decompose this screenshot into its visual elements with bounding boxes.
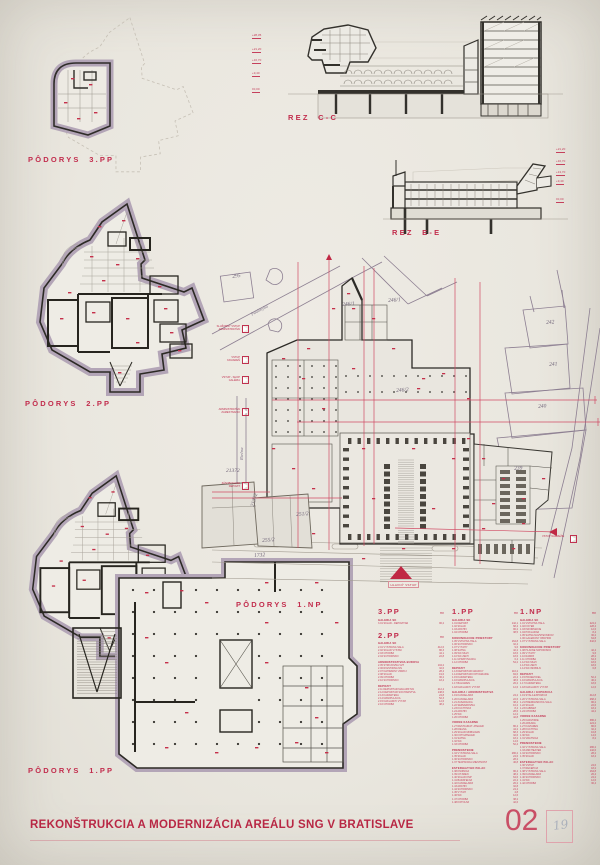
plan-3pp-drawing xyxy=(22,12,237,177)
drawing-sheet: PÔDORYS 3.PP REZ C-C REZ E-E PÔDORYS 2.P… xyxy=(0,0,600,865)
legend-row: 2.16 CHODBA48,2 xyxy=(378,703,444,706)
elevation-label: +16,70 xyxy=(252,59,261,64)
section-ee-label: REZ E-E xyxy=(392,228,441,237)
section-cc-drawing xyxy=(278,10,570,122)
plan-3pp-label: PÔDORYS 3.PP xyxy=(28,155,114,164)
legend-row: 1.24 CHODBA44,2 xyxy=(520,710,596,713)
legend-column: 1.NPm²GALÉRIA SK1.01 VSTUPNÁ HALA224,21.… xyxy=(520,601,596,785)
elevation-label: +13,70 xyxy=(556,171,565,176)
legend-floor-header: 1.PPm² xyxy=(452,607,518,616)
main-entry-marker xyxy=(390,566,412,579)
section-ee-levels: +21,20+16,70+13,70+9,40±0,00 xyxy=(556,146,580,238)
legend-row: 1.31 VRÁTNICA8,2 xyxy=(520,737,596,740)
legend-floor-header: 1.NPm² xyxy=(520,607,596,616)
pencil-note: 19 xyxy=(552,817,569,833)
plan-1np-drawing xyxy=(212,248,600,590)
legend-row: 1.35 SKLAD18,4 xyxy=(520,755,596,758)
legend-row: 1.26 CHODBA42,8 xyxy=(452,716,518,719)
legend-floor-header: 3.PPm² xyxy=(378,607,444,616)
plan-2pp-label: PÔDORYS 2.PP xyxy=(25,399,111,408)
elevation-label: +21,20 xyxy=(556,148,565,153)
plan-2pp-drawing xyxy=(18,192,223,420)
legend-row: 1.33 CHODBA52,4 xyxy=(452,743,518,746)
section-cc-label: REZ C-C xyxy=(288,113,338,122)
street-riecna-label: Riečna xyxy=(239,448,244,461)
plan-1np-label: PÔDORYS 1.NP xyxy=(236,600,323,609)
legend: 3.PPm²GALÉRIA SK3.01 SKLAD - DEPOZITÁR96… xyxy=(375,601,600,801)
elevation-label: ±0,00 xyxy=(252,88,260,93)
elevation-label: +9,40 xyxy=(252,72,260,77)
elevation-label: +16,70 xyxy=(556,160,565,165)
legend-row: 3.01 SKLAD - DEPOZITÁR96,2 xyxy=(378,622,444,625)
main-entry-label: HLAVNÝ VSTUP xyxy=(388,581,419,588)
section-cc-levels: +28,35+21,20+16,70+9,40±0,00 xyxy=(252,10,276,122)
legend-row: 1.37 TECHNICKÁ MIESTNOSŤ46,8 xyxy=(452,761,518,764)
footer-rule xyxy=(30,840,460,841)
legend-row: 1.12 CHODBA54,2 xyxy=(452,661,518,664)
legend-row: 2.04 SCHODISKO22,8 xyxy=(378,655,444,658)
legend-column: 1.PPm²GALÉRIA SK1.01 DEPOZIT142,11.02 SK… xyxy=(452,601,518,804)
legend-row: 1.04 CHODBA38,5 xyxy=(452,631,518,634)
legend-floor-header: 2.PPm² xyxy=(378,631,444,640)
plan-1pp-label: PÔDORYS 1.PP xyxy=(28,766,114,775)
legend-row: 1.14 WC IMOBILNÍ6,8 xyxy=(520,667,596,670)
elevation-label: +28,35 xyxy=(252,34,261,39)
sheet-number-box: 19 xyxy=(546,810,573,843)
section-ee-drawing xyxy=(383,146,575,238)
elevation-label: +9,40 xyxy=(556,180,564,185)
legend-row: 1.42 CHODBA36,4 xyxy=(520,782,596,785)
legend-row: 2.10 SCHODISKO18,4 xyxy=(378,679,444,682)
legend-row: 1.18 NÁKLADNÝ VÝŤAH12,6 xyxy=(520,686,596,689)
sheet-title: REKONŠTRUKCIA A MODERNIZÁCIA AREÁLU SNG … xyxy=(30,819,414,831)
elevation-label: +21,20 xyxy=(252,48,261,53)
elevation-label: ±0,00 xyxy=(556,198,564,203)
legend-column: 3.PPm²GALÉRIA SK3.01 SKLAD - DEPOZITÁR96… xyxy=(378,601,444,706)
legend-row: 1.18 NÁKLADNÝ VÝŤAH12,6 xyxy=(452,686,518,689)
sheet-number: 02 xyxy=(505,804,538,838)
legend-row: 1.07 VÝSTAVNÁ SÁLA342,6 xyxy=(520,640,596,643)
